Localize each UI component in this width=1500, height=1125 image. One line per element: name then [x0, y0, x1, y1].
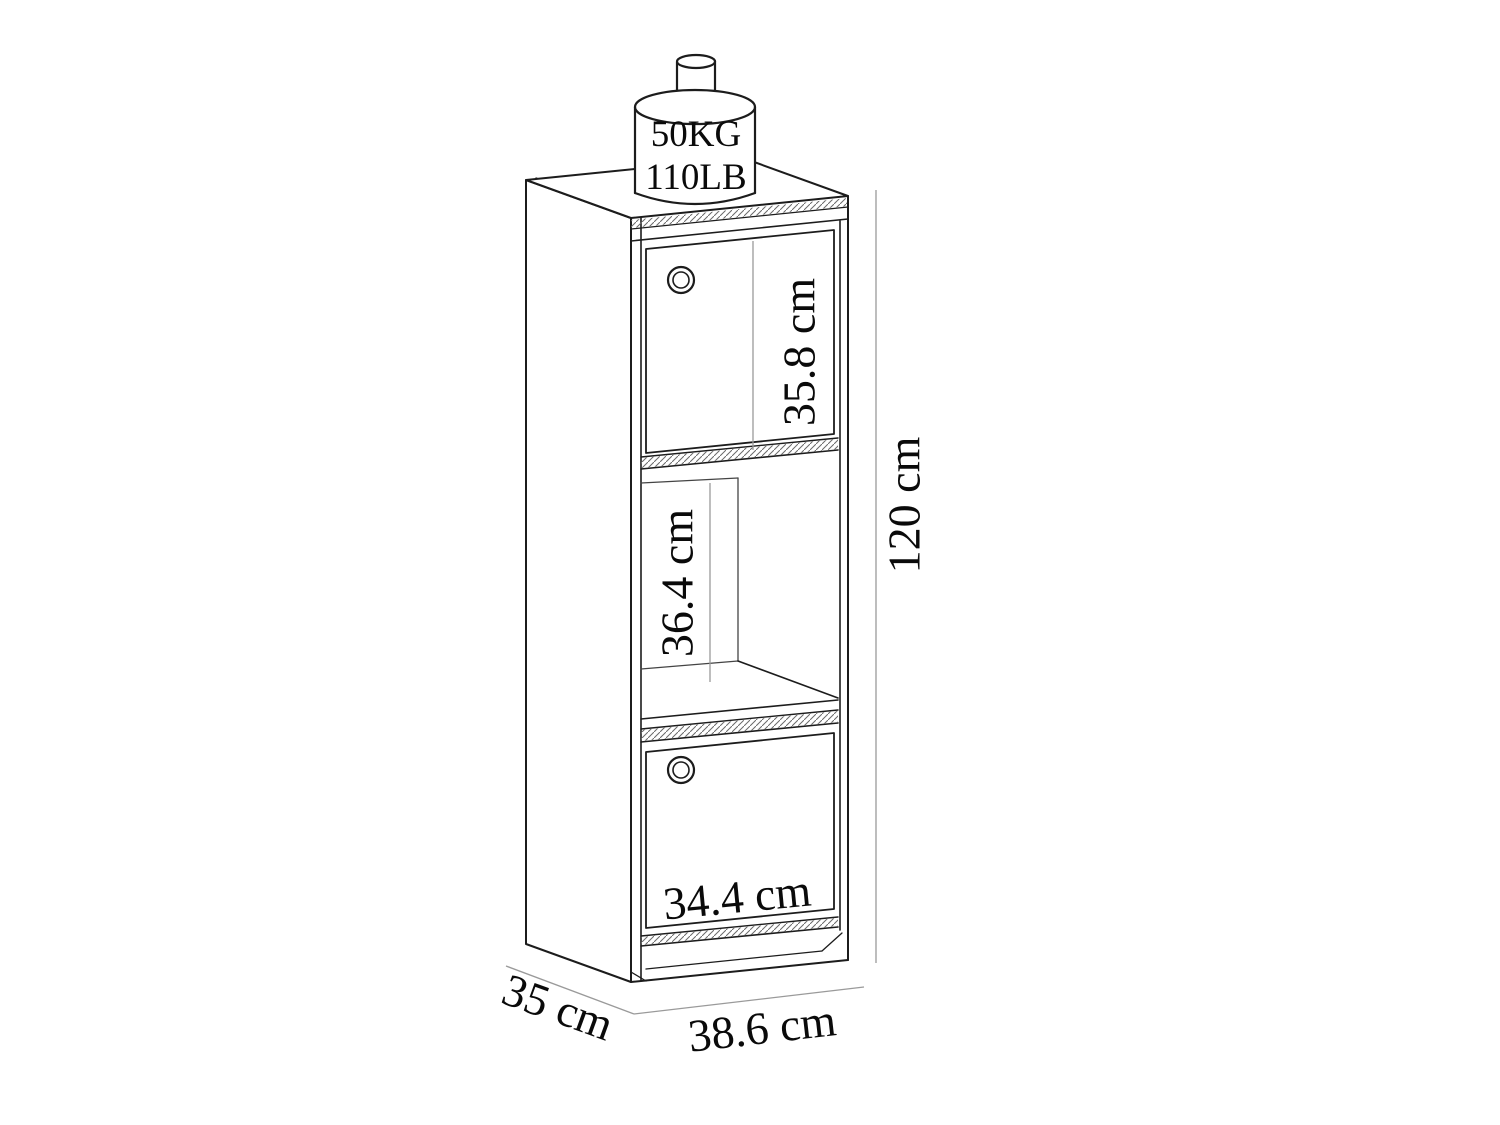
small-cylinder-top [677, 55, 715, 68]
label-depth: 35 cm [496, 964, 620, 1051]
left-side-panel [526, 180, 631, 982]
label-middle-compartment-height: 36.4 cm [652, 509, 703, 657]
label-top-compartment-height: 35.8 cm [774, 278, 825, 426]
label-overall-width: 38.6 cm [685, 994, 838, 1061]
front-bottom-edge [631, 960, 848, 982]
cabinet-diagram-svg: 50KG 110LB 35.8 cm 36.4 cm 34.4 cm 120 c… [0, 0, 1500, 1125]
kick-left-notch [631, 972, 646, 981]
weight-cylinder: 50KG 110LB [635, 55, 755, 204]
back-panel-top-edge [641, 478, 738, 483]
cabinet-diagram-page: 50KG 110LB 35.8 cm 36.4 cm 34.4 cm 120 c… [0, 0, 1500, 1125]
kick-right-notch [822, 933, 842, 951]
label-overall-height: 120 cm [879, 436, 930, 573]
floor-back-edge [641, 661, 738, 669]
weight-lb-label: 110LB [645, 157, 746, 198]
right-wall-bottom-edge [738, 661, 838, 698]
weight-kg-label: 50KG [651, 114, 741, 155]
